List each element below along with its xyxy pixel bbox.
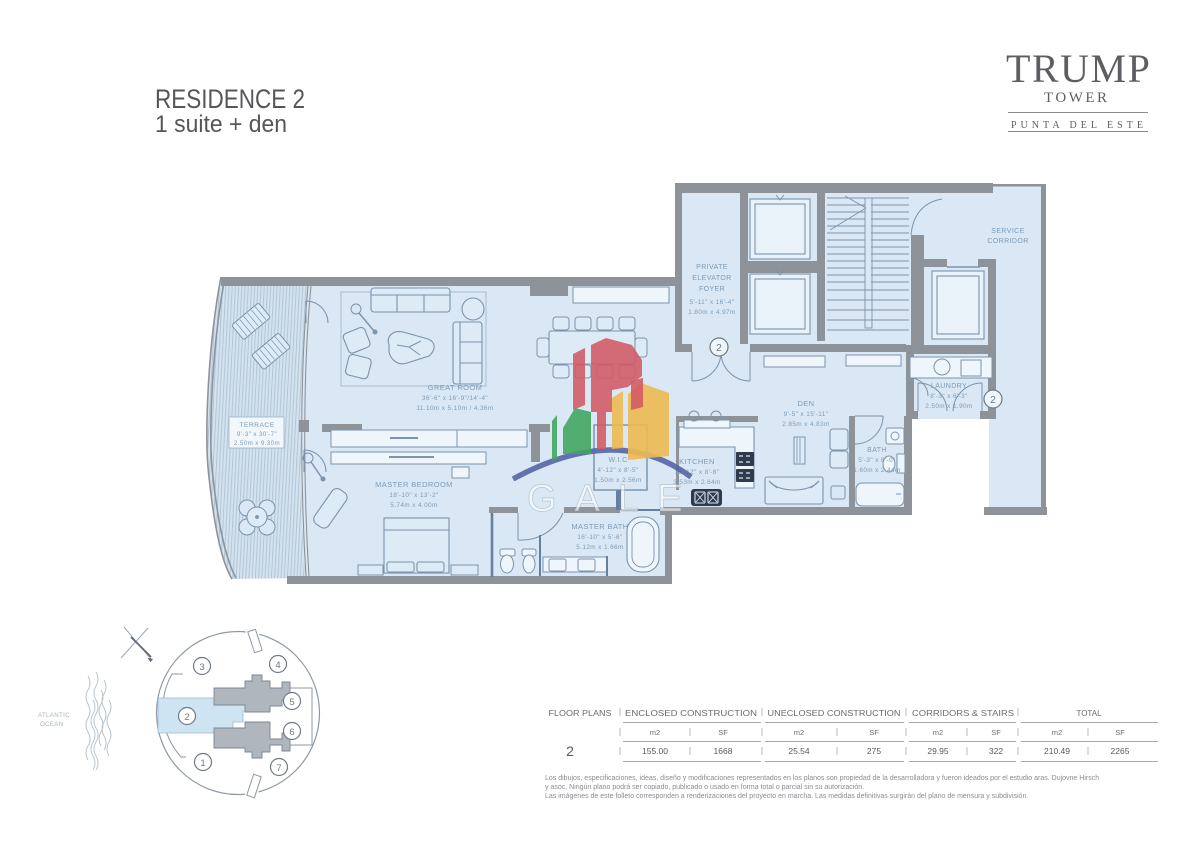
svg-text:MASTER BATH: MASTER BATH	[571, 522, 628, 531]
svg-text:4: 4	[275, 660, 280, 671]
svg-text:5.74m x 4.00m: 5.74m x 4.00m	[390, 502, 437, 509]
svg-text:2.50m x 9.30m: 2.50m x 9.30m	[234, 440, 280, 447]
svg-text:1.60m x 2.44m: 1.60m x 2.44m	[853, 467, 900, 474]
svg-text:KITCHEN: KITCHEN	[679, 457, 715, 466]
svg-text:6: 6	[289, 727, 294, 738]
svg-text:2: 2	[716, 343, 722, 354]
svg-text:FLOOR PLANS: FLOOR PLANS	[549, 709, 612, 718]
svg-text:W.I.C: W.I.C	[608, 457, 627, 464]
svg-text:8'-3" x 6'-3": 8'-3" x 6'-3"	[930, 393, 967, 400]
svg-text:18'-10" x 13'-2": 18'-10" x 13'-2"	[389, 492, 438, 499]
svg-text:TRUMP: TRUMP	[1006, 46, 1151, 91]
svg-text:ELEVATOR: ELEVATOR	[692, 275, 731, 282]
svg-text:SF: SF	[991, 728, 1001, 737]
svg-text:7: 7	[276, 763, 281, 774]
svg-text:36'-6" x 16'-9"/14'-4": 36'-6" x 16'-9"/14'-4"	[422, 395, 488, 402]
svg-text:2265: 2265	[1111, 746, 1130, 756]
svg-text:Las imágenes de este folleto c: Las imágenes de este folleto corresponde…	[545, 793, 1028, 800]
svg-text:2.50m x 1.90m: 2.50m x 1.90m	[925, 403, 972, 410]
svg-text:GREAT ROOM: GREAT ROOM	[428, 383, 483, 392]
svg-text:m2: m2	[650, 728, 660, 737]
svg-text:1668: 1668	[714, 746, 733, 756]
svg-text:m2: m2	[794, 728, 804, 737]
svg-text:FOYER: FOYER	[699, 286, 725, 293]
svg-text:1: 1	[200, 758, 205, 769]
svg-text:m2: m2	[933, 728, 943, 737]
svg-text:BATH: BATH	[867, 447, 887, 454]
svg-text:25.54: 25.54	[788, 746, 810, 756]
svg-text:16'-10" x 5'-6": 16'-10" x 5'-6"	[577, 534, 622, 541]
svg-text:2: 2	[184, 712, 189, 723]
svg-text:SF: SF	[869, 728, 879, 737]
svg-text:CORRIDOR: CORRIDOR	[987, 238, 1028, 245]
svg-text:ATLANTIC: ATLANTIC	[38, 712, 70, 719]
svg-text:SF: SF	[1115, 728, 1125, 737]
svg-text:MASTER BEDROOM: MASTER BEDROOM	[375, 480, 453, 489]
svg-text:322: 322	[989, 746, 1003, 756]
svg-text:29.95: 29.95	[927, 746, 949, 756]
svg-text:UNECLOSED CONSTRUCTION: UNECLOSED CONSTRUCTION	[768, 709, 901, 718]
svg-text:11.10m x 5.10m / 4.36m: 11.10m x 5.10m / 4.36m	[416, 405, 493, 412]
svg-text:SF: SF	[718, 728, 728, 737]
svg-text:PUNTA DEL ESTE: PUNTA DEL ESTE	[1011, 120, 1147, 131]
svg-text:y asoc. Ningún plano podrá ser: y asoc. Ningún plano podrá ser copiado, …	[545, 784, 864, 791]
svg-text:1.80m x 4.97m: 1.80m x 4.97m	[688, 309, 735, 316]
svg-text:2: 2	[566, 743, 574, 759]
svg-text:9'-3" x 30'-7": 9'-3" x 30'-7"	[237, 431, 277, 438]
svg-text:CORRIDORS & STAIRS: CORRIDORS & STAIRS	[912, 709, 1014, 718]
svg-text:SERVICE: SERVICE	[991, 228, 1024, 235]
svg-text:5'-3" x 8'-0": 5'-3" x 8'-0"	[858, 457, 895, 464]
svg-text:210.49: 210.49	[1044, 746, 1070, 756]
svg-text:3: 3	[199, 662, 204, 673]
svg-text:1 suite + den: 1 suite + den	[155, 111, 287, 138]
svg-text:155.00: 155.00	[642, 746, 668, 756]
svg-text:2: 2	[990, 395, 996, 406]
svg-text:4'-12" x 8'-5": 4'-12" x 8'-5"	[597, 467, 638, 474]
svg-text:DEN: DEN	[797, 399, 814, 408]
svg-text:LAUNDRY: LAUNDRY	[931, 383, 967, 390]
svg-text:5'-11" x 16'-4": 5'-11" x 16'-4"	[690, 299, 735, 306]
svg-text:TOTAL: TOTAL	[1076, 709, 1102, 718]
svg-text:ENCLOSED CONSTRUCTION: ENCLOSED CONSTRUCTION	[625, 709, 757, 718]
svg-text:GALE: GALE	[527, 478, 700, 520]
svg-text:TERRACE: TERRACE	[239, 422, 274, 429]
svg-text:2.85m x 4.83m: 2.85m x 4.83m	[782, 421, 829, 428]
svg-text:RESIDENCE 2: RESIDENCE 2	[155, 84, 305, 114]
svg-text:275: 275	[867, 746, 881, 756]
svg-text:5: 5	[289, 697, 294, 708]
svg-text:OCEAN: OCEAN	[40, 721, 64, 728]
svg-text:5.12m x 1.66m: 5.12m x 1.66m	[576, 544, 623, 551]
svg-text:m2: m2	[1052, 728, 1062, 737]
svg-text:PRIVATE: PRIVATE	[696, 264, 728, 271]
svg-text:9'-5" x 15'-11": 9'-5" x 15'-11"	[784, 411, 829, 418]
svg-text:Los dibujos, especificaciones,: Los dibujos, especificaciones, ideas, di…	[545, 775, 1099, 782]
svg-text:TOWER: TOWER	[1044, 90, 1110, 106]
